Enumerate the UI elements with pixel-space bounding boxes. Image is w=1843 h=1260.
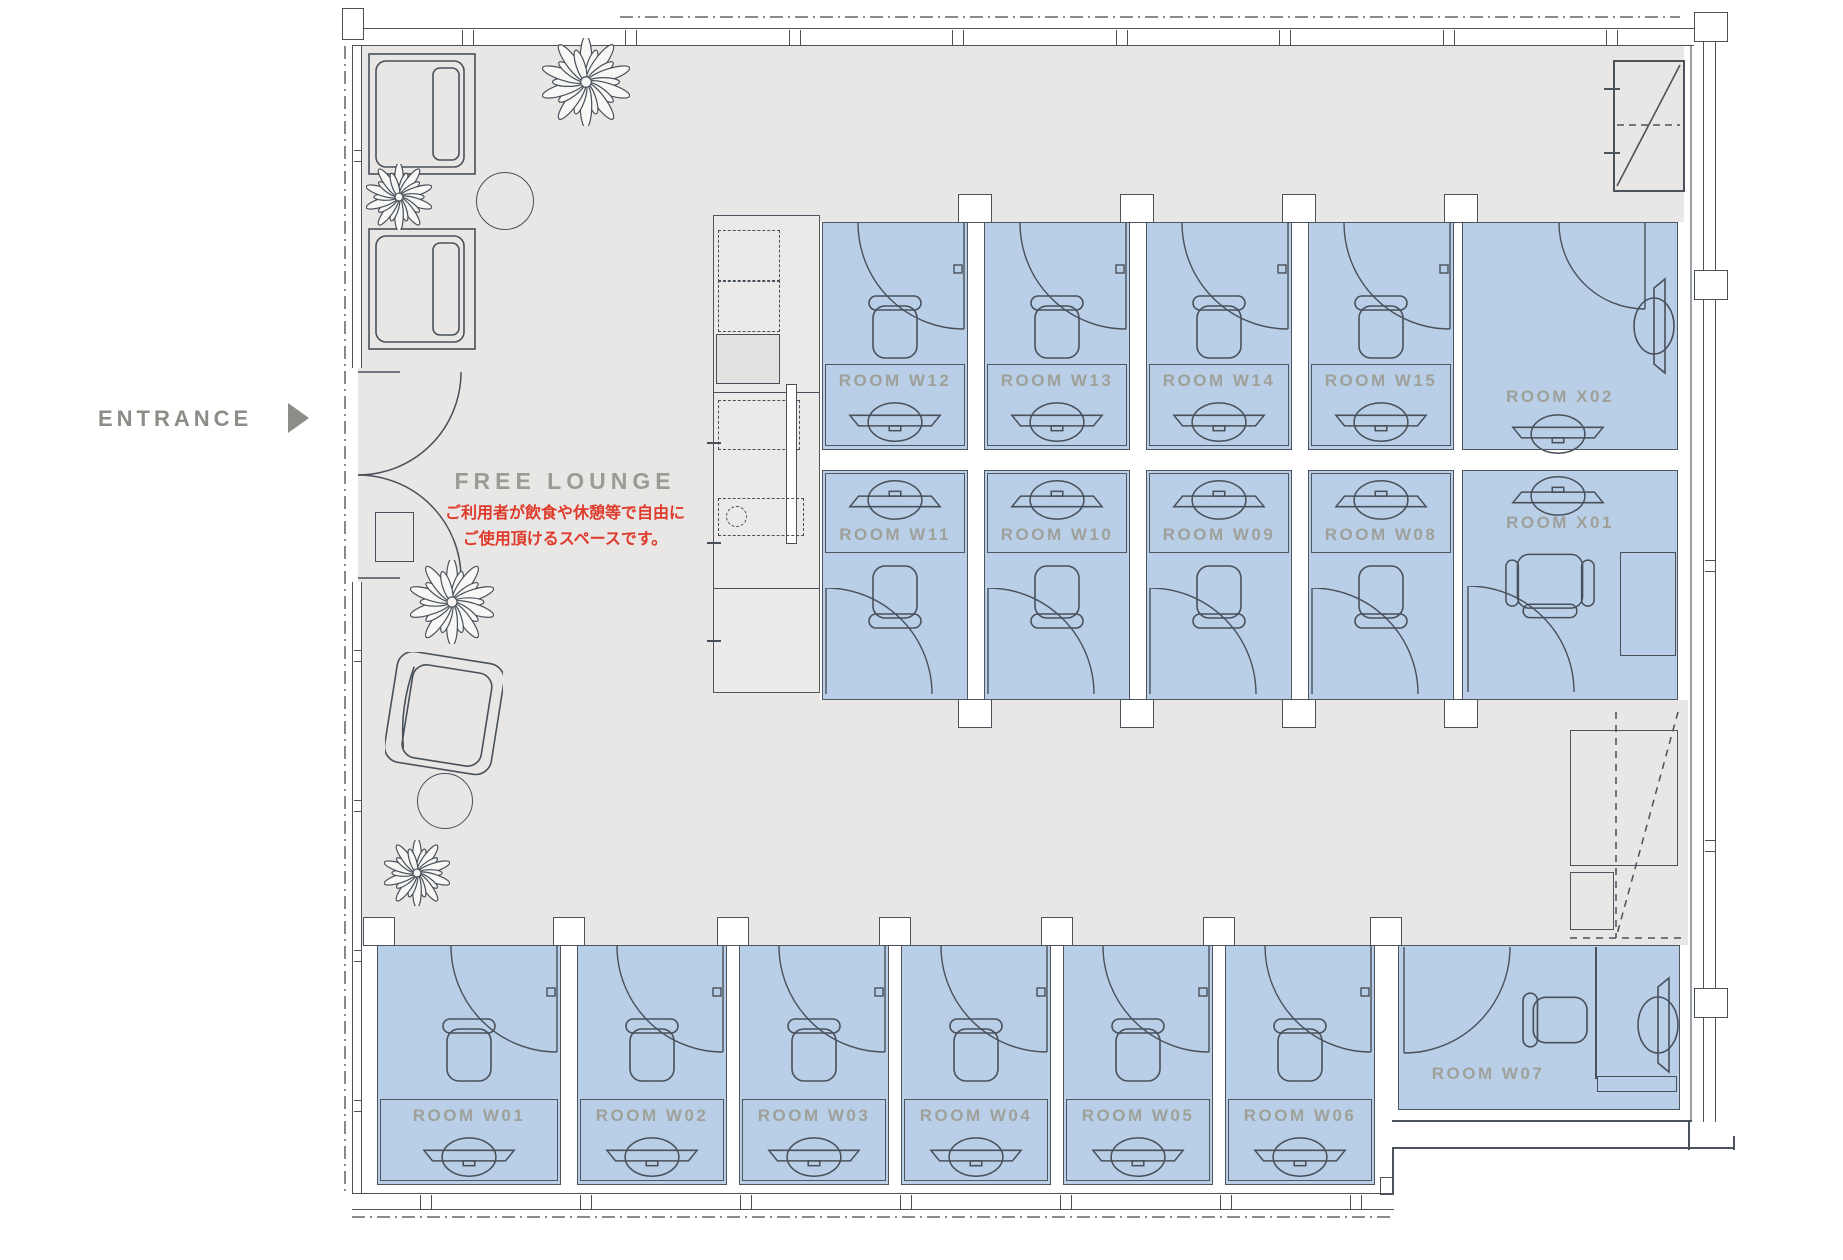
window-mullion-right-1 xyxy=(1705,840,1715,852)
room-label-w04: ROOM W04 xyxy=(901,1107,1051,1127)
free-lounge-title: FREE LOUNGE xyxy=(425,468,705,495)
plant-left-lower xyxy=(384,840,450,906)
kitchen-tick-2 xyxy=(707,640,721,642)
closet-tick-1 xyxy=(1604,88,1620,90)
room-desk-w06 xyxy=(1252,1135,1348,1181)
lounge-armchair-2 xyxy=(367,227,477,351)
wall-block-right-2 xyxy=(1694,988,1728,1018)
kitchen-tick-0 xyxy=(707,442,721,444)
window-mullion-bottom-1 xyxy=(580,1195,592,1209)
door-stub-mid-0 xyxy=(958,699,992,728)
door-stub-bottom-5 xyxy=(1203,917,1235,946)
room-chair-w04 xyxy=(944,1017,1008,1083)
room-label-x01: ROOM X01 xyxy=(1452,514,1668,534)
room-desk-w02 xyxy=(604,1135,700,1181)
room-label-w11: ROOM W11 xyxy=(822,526,968,546)
entrance: ENTRANCE xyxy=(98,402,328,438)
room-desk-w07 xyxy=(1636,969,1682,1081)
room-chair-w15 xyxy=(1349,294,1413,360)
room-door-w10 xyxy=(986,588,1096,698)
window-mullion-bottom-4 xyxy=(1060,1195,1072,1209)
kitchen-cabinet-dashed-2 xyxy=(718,280,780,332)
room-table-w07 xyxy=(1597,1076,1677,1092)
wall-step-h1 xyxy=(1392,1120,1692,1122)
room-label-w12: ROOM W12 xyxy=(822,372,968,392)
lounge-big-chair xyxy=(385,652,503,778)
floor-plan: ROOM W12ROOM W13ROOM W14ROOM W15ROOM X02… xyxy=(0,0,1843,1260)
room-label-w09: ROOM W09 xyxy=(1146,526,1292,546)
free-lounge-note: ご利用者が飲食や休憩等で自由に ご使用頂けるスペースです。 xyxy=(405,501,725,554)
room-desk-x02 xyxy=(1510,412,1606,458)
room-desk-w04 xyxy=(928,1135,1024,1181)
closet-top-right xyxy=(1613,60,1685,192)
room-desk-w11 xyxy=(847,476,943,522)
wall-step-hook xyxy=(1733,1136,1735,1150)
room-desk-w13 xyxy=(1009,400,1105,446)
floor-mid-corridor xyxy=(820,700,1688,945)
plant-left-mid xyxy=(410,560,494,644)
room-label-w06: ROOM W06 xyxy=(1225,1107,1375,1127)
kitchen-divider-2 xyxy=(714,588,819,589)
wall-bottom xyxy=(352,1193,1394,1210)
room-chair-w13 xyxy=(1025,294,1089,360)
door-stub-bottom-2 xyxy=(717,917,749,946)
room-label-w15: ROOM W15 xyxy=(1308,372,1454,392)
room-desk-w03 xyxy=(766,1135,862,1181)
room-label-w10: ROOM W10 xyxy=(984,526,1130,546)
lounge-stool xyxy=(417,773,473,829)
dashdot-left xyxy=(344,46,346,1196)
room-desk-w08 xyxy=(1333,476,1429,522)
window-mullion-top-4 xyxy=(1116,30,1128,45)
wall-left-upper xyxy=(352,46,362,368)
room-label-w05: ROOM W05 xyxy=(1063,1107,1213,1127)
room-chair-w07 xyxy=(1520,987,1590,1053)
closet-tick-2 xyxy=(1604,152,1620,154)
kitchen-cabinet-dashed-1 xyxy=(718,230,780,282)
door-stub-top-1 xyxy=(1120,194,1154,223)
room-label-w03: ROOM W03 xyxy=(739,1107,889,1127)
plant-left-upper xyxy=(366,164,432,230)
window-mullion-top-6 xyxy=(1443,30,1455,45)
window-mullion-left-1 xyxy=(354,800,361,812)
wall-step-v1 xyxy=(1688,1120,1690,1150)
room-desk-w14 xyxy=(1171,400,1267,446)
room-door-w11 xyxy=(824,588,934,698)
door-stub-top-2 xyxy=(1282,194,1316,223)
window-mullion-left-up-0 xyxy=(354,150,361,162)
wall-right xyxy=(1703,28,1716,1122)
room-desk-w10 xyxy=(1009,476,1105,522)
entrance-arrow-icon xyxy=(288,403,309,433)
door-stub-bottom-3 xyxy=(879,917,911,946)
door-stub-mid-3 xyxy=(1444,699,1478,728)
wall-block-topright xyxy=(1694,12,1728,42)
room-desk-w15 xyxy=(1333,400,1429,446)
room-chair-w12 xyxy=(863,294,927,360)
room-chair-w01 xyxy=(437,1017,501,1083)
window-mullion-right-0 xyxy=(1705,560,1715,572)
wall-step-box xyxy=(1380,1177,1394,1195)
dashdot-top xyxy=(620,16,1680,18)
wall-block-right-1 xyxy=(1694,270,1728,300)
room-sidetable-x01 xyxy=(1620,552,1676,656)
door-stub-bottom-0 xyxy=(363,917,395,946)
door-stub-bottom-1 xyxy=(553,917,585,946)
window-mullion-bottom-3 xyxy=(900,1195,912,1209)
room-desk-w01 xyxy=(421,1135,517,1181)
kitchenette xyxy=(713,215,820,693)
storage-dashed-lines xyxy=(1566,710,1688,942)
window-mullion-top-5 xyxy=(1279,30,1291,45)
wall-block-topleft xyxy=(342,8,364,40)
room-label-w01: ROOM W01 xyxy=(377,1107,561,1127)
room-desk-x01 xyxy=(1510,472,1606,518)
window-mullion-top-7 xyxy=(1606,30,1618,45)
kitchen-cooktop-burner xyxy=(726,506,747,527)
room-label-w08: ROOM W08 xyxy=(1308,526,1454,546)
window-mullion-left-2 xyxy=(354,950,361,962)
room-divider-w07 xyxy=(1595,947,1597,1079)
free-lounge-note-line2: ご使用頂けるスペースです。 xyxy=(463,531,667,548)
lounge-round-table xyxy=(476,172,534,230)
window-mullion-top-0 xyxy=(462,30,474,45)
room-label-x02: ROOM X02 xyxy=(1452,388,1668,408)
door-stub-mid-1 xyxy=(1120,699,1154,728)
door-stub-bottom-6 xyxy=(1370,917,1402,946)
room-door-x01 xyxy=(1466,586,1576,696)
door-stub-top-3 xyxy=(1444,194,1478,223)
room-sidedesk-x02 xyxy=(1632,270,1678,382)
room-chair-w14 xyxy=(1187,294,1251,360)
free-lounge-note-line1: ご利用者が飲食や休憩等で自由に xyxy=(445,505,685,522)
kitchen-cabinet-solid xyxy=(716,334,780,384)
room-label-w07: ROOM W07 xyxy=(1408,1065,1568,1085)
kitchen-divider-1 xyxy=(714,392,819,393)
room-label-w14: ROOM W14 xyxy=(1146,372,1292,392)
wall-inner-right-face xyxy=(1690,46,1692,1122)
room-door-w09 xyxy=(1148,588,1258,698)
room-door-w07 xyxy=(1402,947,1512,1057)
window-mullion-bottom-2 xyxy=(740,1195,752,1209)
room-label-w13: ROOM W13 xyxy=(984,372,1130,392)
room-desk-w12 xyxy=(847,400,943,446)
window-mullion-left-3 xyxy=(354,1100,361,1112)
plant-top xyxy=(542,38,630,126)
window-mullion-bottom-0 xyxy=(420,1195,432,1209)
room-label-w02: ROOM W02 xyxy=(577,1107,727,1127)
door-stub-top-0 xyxy=(958,194,992,223)
room-door-w08 xyxy=(1310,588,1420,698)
door-stub-bottom-4 xyxy=(1041,917,1073,946)
dashdot-bottom xyxy=(352,1216,1392,1218)
window-mullion-left-0 xyxy=(354,650,361,662)
wall-step-h2 xyxy=(1394,1147,1734,1149)
room-desk-w09 xyxy=(1171,476,1267,522)
room-chair-w02 xyxy=(620,1017,684,1083)
room-desk-w05 xyxy=(1090,1135,1186,1181)
lounge-armchair-1 xyxy=(367,52,477,176)
room-chair-w06 xyxy=(1268,1017,1332,1083)
window-mullion-top-3 xyxy=(952,30,964,45)
window-mullion-top-2 xyxy=(789,30,801,45)
entrance-label: ENTRANCE xyxy=(98,406,252,432)
window-mullion-bottom-6 xyxy=(1350,1195,1362,1209)
room-chair-w05 xyxy=(1106,1017,1170,1083)
room-chair-w03 xyxy=(782,1017,846,1083)
window-mullion-bottom-5 xyxy=(1220,1195,1232,1209)
door-stub-mid-2 xyxy=(1282,699,1316,728)
